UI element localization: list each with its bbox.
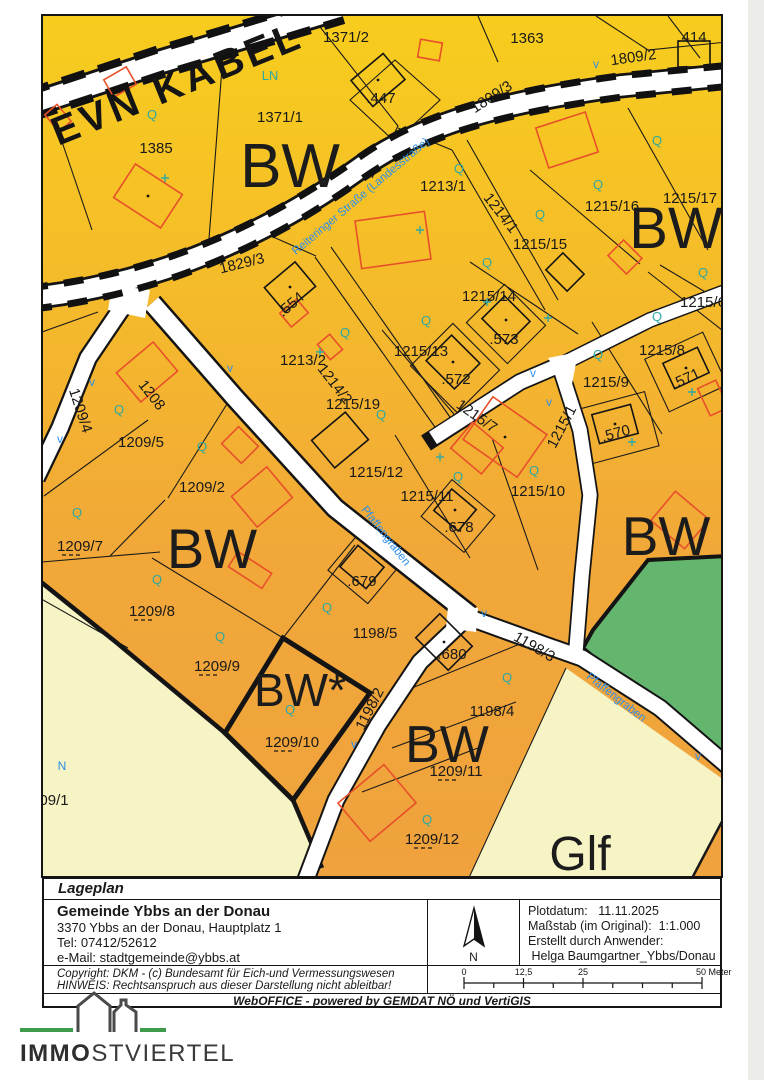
parcel-label: 1209/9 xyxy=(194,658,240,675)
zone-label: BW xyxy=(167,517,257,580)
parcel-label: .572 xyxy=(441,371,470,388)
zone-label: BW xyxy=(240,132,340,201)
immostviertel-logo: IMMOSTVIERTEL xyxy=(18,990,258,1076)
q-symbol: Q xyxy=(535,207,545,222)
parcel-label: 1215/6 xyxy=(680,294,726,311)
parcel-label: .573 xyxy=(489,331,518,348)
north-arrow-icon xyxy=(444,904,504,950)
municipality-cell: Gemeinde Ybbs an der Donau 3370 Ybbs an … xyxy=(44,900,428,965)
v-symbol: v xyxy=(227,361,233,375)
parcel-label: 1215/14 xyxy=(462,288,516,305)
scale-tick-12: 12,5 xyxy=(515,967,533,977)
parcel-label: .678 xyxy=(444,519,473,536)
v-symbol: v xyxy=(89,375,95,389)
parcel-label: 1198/5 xyxy=(353,625,398,642)
v-symbol: v xyxy=(481,606,487,620)
zone-label: Glf xyxy=(549,828,611,881)
q-symbol: Q xyxy=(285,702,295,717)
copyright-cell: Copyright: DKM - (c) Bundesamt für Eich-… xyxy=(44,966,428,993)
parcel-label: 1363 xyxy=(510,30,543,47)
q-symbol: Q xyxy=(529,463,539,478)
q-symbol: Q xyxy=(482,255,492,270)
municipality-email: e-Mail: stadtgemeinde@ybbs.at xyxy=(57,950,427,965)
logo-wordmark: IMMOSTVIERTEL xyxy=(20,1040,235,1068)
q-symbol: Q xyxy=(340,325,350,340)
north-arrow-cell: N xyxy=(428,900,520,965)
parcel-label: .447 xyxy=(366,90,395,107)
parcel-label: 1215/10 xyxy=(511,483,565,500)
parcel-label: .414 xyxy=(677,29,706,46)
parcel-label: 1209/2 xyxy=(179,479,225,496)
zone-label: BW* xyxy=(254,664,346,716)
parcel-label: .680 xyxy=(437,646,466,663)
zone-label: BW xyxy=(622,505,711,567)
north-label: N xyxy=(428,950,519,964)
q-symbol: Q xyxy=(322,600,332,615)
creator-value-line: Helga Baumgartner_Ybbs/Donau xyxy=(528,949,720,964)
q-symbol: Q xyxy=(698,265,708,280)
q-symbol: Q xyxy=(502,670,512,685)
parcel-label: 1209/10 xyxy=(265,734,319,751)
q-symbol: Q xyxy=(652,133,662,148)
parcel-label: 1215/11 xyxy=(400,488,453,505)
parcel-label: 1209/8 xyxy=(129,603,175,620)
v-symbol: v xyxy=(530,366,536,380)
parcel-label: 09/1 xyxy=(39,792,68,809)
scale-tick-50: 50 Meter xyxy=(696,967,732,977)
q-symbol: Q xyxy=(453,469,463,484)
logo-houses-icon xyxy=(18,990,258,1038)
parcel-label: 1215/19 xyxy=(326,396,380,413)
scale-bar: 0 12,5 25 50 Meter xyxy=(456,967,746,993)
v-symbol: N xyxy=(58,759,67,773)
parcel-label: .679 xyxy=(347,573,376,590)
q-symbol: Q xyxy=(114,402,124,417)
q-symbol: Q xyxy=(152,572,162,587)
scale-tick-0: 0 xyxy=(461,967,466,977)
plot-meta-cell: Plotdatum: 11.11.2025 Maßstab (im Origin… xyxy=(520,900,720,965)
q-symbol: Q xyxy=(215,629,225,644)
q-symbol: Q xyxy=(376,407,386,422)
plan-title: Lageplan xyxy=(44,879,720,900)
parcel-label: 1215/16 xyxy=(585,198,639,215)
municipality-name: Gemeinde Ybbs an der Donau xyxy=(57,903,427,920)
parcel-label: 1209/12 xyxy=(405,831,459,848)
parcel-label: 1209/7 xyxy=(57,538,103,555)
parcel-label: 1213/1 xyxy=(420,178,466,195)
creator-label-line: Erstellt durch Anwender: xyxy=(528,934,720,949)
parcel-label: 1215/15 xyxy=(513,236,567,253)
parcel-label: 1198/4 xyxy=(470,703,515,720)
plot-scale-line: Maßstab (im Original): 1:1.000 xyxy=(528,919,720,934)
parcel-label: 1215/13 xyxy=(394,343,448,360)
parcel-label: 1215/8 xyxy=(639,342,685,359)
page-edge-shadow xyxy=(748,0,764,1080)
q-symbol: Q xyxy=(652,309,662,324)
municipality-phone: Tel: 07412/52612 xyxy=(57,935,427,950)
scalebar-cell: 0 12,5 25 50 Meter xyxy=(428,966,720,993)
copyright-line: Copyright: DKM - (c) Bundesamt für Eich-… xyxy=(57,968,427,980)
title-block: Lageplan Gemeinde Ybbs an der Donau 3370… xyxy=(42,877,722,1008)
parcel-label: 1215/12 xyxy=(349,464,403,481)
parcel-label: 1209/5 xyxy=(118,434,164,451)
v-symbol: v xyxy=(57,432,63,446)
parcel-label: 1371/2 xyxy=(323,29,369,46)
v-symbol: v xyxy=(695,749,701,763)
q-symbol: Q xyxy=(421,313,431,328)
q-symbol: Q xyxy=(593,177,603,192)
parcel-label: 1385 xyxy=(139,140,172,157)
v-symbol: v xyxy=(546,395,552,409)
plot-date-line: Plotdatum: 11.11.2025 xyxy=(528,904,720,919)
municipality-address: 3370 Ybbs an der Donau, Hauptplatz 1 xyxy=(57,920,427,935)
parcel-label: 1209/11 xyxy=(429,763,482,780)
q-symbol: Q xyxy=(593,347,603,362)
q-symbol: Q xyxy=(422,812,432,827)
lageplan-page: { "colors":{"zone_top":"#F7CD1D","zone_m… xyxy=(0,0,764,1080)
parcel-label: 1371/1 xyxy=(257,109,303,126)
v-symbol: v xyxy=(593,57,599,71)
v-symbol: v xyxy=(351,737,357,751)
q-symbol: Q xyxy=(72,505,82,520)
scale-tick-25: 25 xyxy=(578,967,588,977)
parcel-label: 1215/9 xyxy=(583,374,629,391)
q-symbol: Q xyxy=(197,439,207,454)
parcel-label: 1215/17 xyxy=(663,190,717,207)
q-symbol: Q xyxy=(454,161,464,176)
